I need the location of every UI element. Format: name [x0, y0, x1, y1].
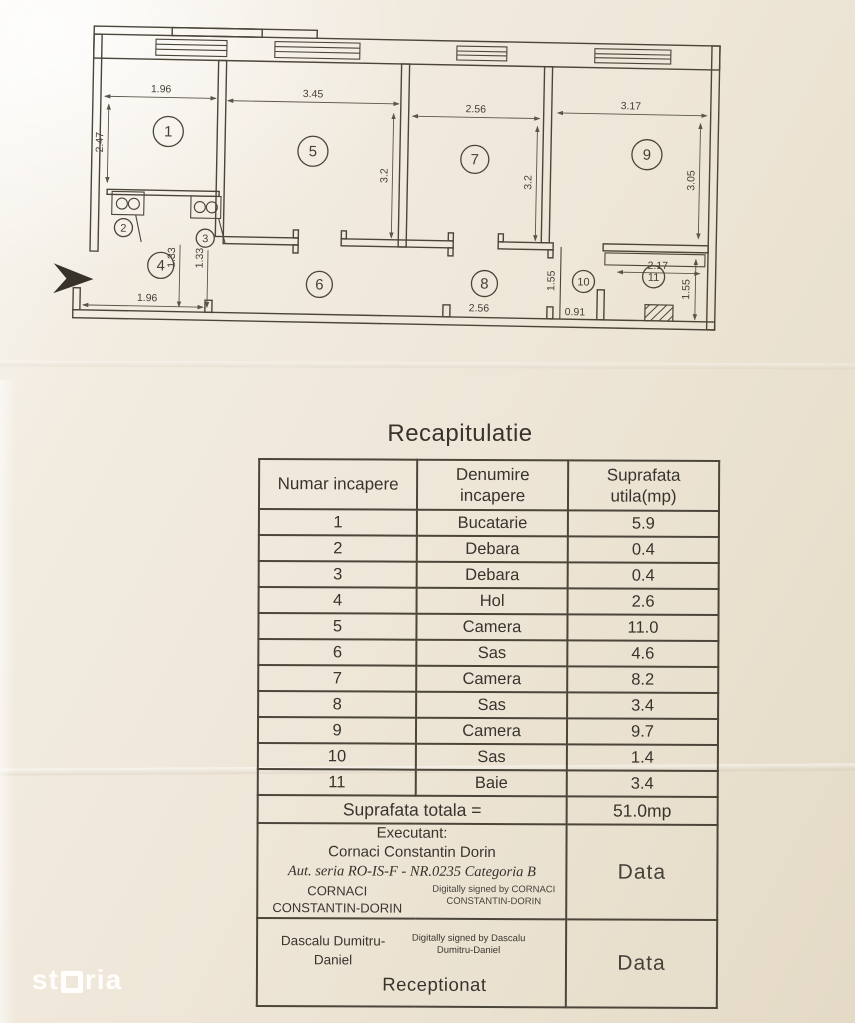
- total-row: Suprafata totala = 51.0mp: [258, 795, 718, 825]
- dimension-labels: 1.96 2.47 3.45 3.2 2.56 3.2 3.17 3.05 1.…: [91, 82, 699, 321]
- room-number-3: 3: [202, 233, 208, 245]
- room-area-cell: 1.4: [567, 744, 718, 771]
- outer-walls: [73, 26, 720, 330]
- room-number-cell: 1: [259, 509, 417, 536]
- window-icon: [595, 49, 671, 64]
- total-label: Suprafata totala =: [258, 795, 567, 824]
- dim-room5-width: 3.45: [303, 88, 324, 100]
- room-number-5: 5: [309, 143, 318, 160]
- room-area-cell: 4.6: [567, 640, 718, 667]
- dim-room11-height: 1.55: [680, 279, 692, 300]
- room-number-cell: 11: [258, 769, 416, 796]
- window-icon: [275, 42, 360, 60]
- room-name-cell: Debara: [417, 562, 568, 589]
- room-number-cell: 3: [259, 561, 417, 588]
- date-cell: Data: [566, 919, 717, 1008]
- table-row: 4Hol2.6: [259, 587, 719, 615]
- room-area-cell: 0.4: [568, 536, 719, 563]
- total-value: 51.0mp: [567, 796, 718, 825]
- column-header-denumire: Denumire incapere: [417, 460, 568, 511]
- table-row: 2Debara0.4: [259, 535, 719, 563]
- executant-authorization: Aut. seria RO-IS-F - NR.0235 Categoria B: [262, 862, 561, 882]
- room-area-cell: 11.0: [567, 614, 718, 641]
- executant-cell: Executant: Cornaci Constantin Dorin Aut.…: [257, 823, 566, 919]
- dim-hall-right: 1.33: [194, 248, 206, 269]
- table-header-row: Numar incapere Denumire incapere Suprafa…: [259, 459, 719, 511]
- room-area-cell: 3.4: [567, 692, 718, 719]
- room-name-cell: Debara: [417, 536, 568, 563]
- room-number-9: 9: [643, 147, 652, 164]
- page-title: Recapitulatie: [250, 420, 670, 448]
- room-name-cell: Camera: [417, 614, 568, 641]
- dim-room7-height: 3.2: [522, 175, 534, 190]
- storia-watermark-suffix: ria: [85, 964, 122, 996]
- table-row: 1Bucatarie5.9: [259, 509, 719, 537]
- digital-signature-block: CORNACI CONSTANTIN-DORIN Digitally signe…: [262, 883, 561, 918]
- dim-room7-width: 2.56: [465, 103, 486, 115]
- dim-bottom-left: 1.96: [137, 292, 158, 304]
- room-name-cell: Sas: [416, 640, 567, 667]
- digital-signature-block: Dascalu Dumitru-Daniel Digitally signed …: [262, 932, 561, 970]
- paper-edge-highlight: [0, 380, 16, 1023]
- signature-note: Digitally signed by CORNACI CONSTANTIN-D…: [426, 884, 561, 908]
- date-cell: Data: [566, 824, 717, 920]
- storia-square-o-icon: [61, 971, 83, 993]
- room-area-cell: 3.4: [567, 770, 718, 797]
- room-number-11: 11: [648, 272, 660, 284]
- room-name-cell: Camera: [416, 718, 567, 745]
- shaft-hatch-symbol: [645, 305, 673, 322]
- paper-crease: [0, 361, 855, 370]
- window-icon: [457, 46, 507, 61]
- storia-watermark-prefix: st: [32, 964, 59, 996]
- floor-plan: 1.96 2.47 3.45 3.2 2.56 3.2 3.17 3.05 1.…: [46, 21, 742, 346]
- room-name-cell: Hol: [417, 588, 568, 615]
- room-number-cell: 10: [258, 743, 416, 770]
- room-area-cell: 2.6: [568, 588, 719, 615]
- table-row: 5Camera11.0: [258, 613, 718, 641]
- room-number-cell: 9: [258, 717, 416, 744]
- column-header-suprafata: Suprafata utila(mp): [568, 460, 719, 511]
- signature-note: Digitally signed by Dascalu Dumitru-Dani…: [406, 933, 531, 957]
- receptionat-cell: Dascalu Dumitru-Daniel Digitally signed …: [257, 918, 566, 1007]
- room-number-7: 7: [470, 151, 479, 168]
- dim-room1-height: 2.47: [94, 132, 106, 153]
- signer-name: CORNACI CONSTANTIN-DORIN: [262, 883, 412, 917]
- table-row: 9Camera9.7: [258, 717, 718, 745]
- column-header-numar: Numar incapere: [259, 459, 417, 510]
- room-name-cell: Bucatarie: [417, 510, 568, 537]
- room-number-cell: 7: [258, 665, 416, 692]
- table-row: 6Sas4.6: [258, 639, 718, 667]
- dim-sas10-height: 1.55: [545, 270, 557, 291]
- executant-label: Executant:: [263, 824, 562, 844]
- room-labels: 1 2 3 4 5 6 7 8 9 10 11: [113, 115, 667, 304]
- table-row: 7Camera8.2: [258, 665, 718, 693]
- room-name-cell: Sas: [416, 692, 567, 719]
- table-row: 3Debara0.4: [259, 561, 719, 589]
- receptionat-label: Receptionat: [308, 973, 561, 996]
- table-row: 11Baie3.4: [258, 769, 718, 797]
- room-name-cell: Camera: [416, 666, 567, 693]
- signer-name: Dascalu Dumitru-Daniel: [274, 932, 392, 969]
- dim-room1-width: 1.96: [151, 83, 172, 95]
- room-number-6: 6: [315, 276, 324, 293]
- room-area-cell: 0.4: [568, 562, 719, 589]
- dim-room9-width: 3.17: [621, 100, 642, 112]
- recap-table: Numar incapere Denumire incapere Suprafa…: [256, 458, 720, 1009]
- executant-name: Cornaci Constantin Dorin: [262, 843, 561, 863]
- room-number-cell: 8: [258, 691, 416, 718]
- room-name-cell: Baie: [416, 770, 567, 797]
- room-area-cell: 9.7: [567, 718, 718, 745]
- room-number-2: 2: [120, 223, 126, 235]
- room-number-1: 1: [164, 123, 173, 140]
- table-row: 10Sas1.4: [258, 743, 718, 771]
- room-number-cell: 2: [259, 535, 417, 562]
- room-name-cell: Sas: [416, 744, 567, 771]
- room-number-10: 10: [577, 276, 589, 288]
- room-number-8: 8: [480, 275, 489, 292]
- table-row: 8Sas3.4: [258, 691, 718, 719]
- dim-room9-height: 3.05: [685, 170, 697, 191]
- dim-room5-height: 3.2: [378, 168, 390, 183]
- window-icon: [156, 39, 227, 56]
- executant-row: Executant: Cornaci Constantin Dorin Aut.…: [257, 823, 717, 920]
- receptionat-row: Dascalu Dumitru-Daniel Digitally signed …: [257, 918, 717, 1008]
- dim-sas10-width: 0.91: [565, 306, 586, 318]
- dimension-lines: [83, 96, 707, 320]
- room-number-cell: 6: [258, 639, 416, 666]
- room-number-4: 4: [156, 257, 165, 274]
- room-area-cell: 8.2: [567, 666, 718, 693]
- room-number-cell: 5: [258, 613, 416, 640]
- dim-bottom-center: 2.56: [469, 302, 490, 314]
- room-area-cell: 5.9: [568, 510, 719, 537]
- storia-watermark: st ria: [32, 964, 122, 996]
- room-number-cell: 4: [259, 587, 417, 614]
